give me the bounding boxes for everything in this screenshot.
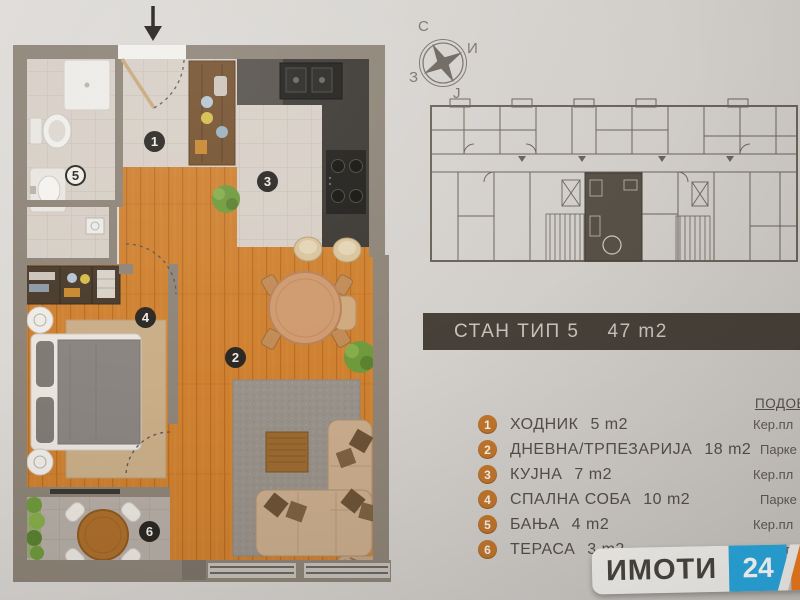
- shower: [64, 60, 110, 110]
- flooring-entry: Парке: [753, 437, 800, 462]
- apartment-title-bar: СТАН ТИП 5 47 m2: [423, 313, 800, 350]
- flooring-entry: Кер.пл: [753, 512, 800, 537]
- corridor-markers: [518, 156, 734, 162]
- washing-machine: [86, 218, 104, 234]
- nightstand-top: [27, 307, 53, 333]
- apartment-floor-plan: [0, 0, 420, 600]
- entrance-gap: [118, 45, 186, 59]
- legend-row-3: 3 КУЈНА 7 m2: [478, 462, 751, 487]
- dining-set: [260, 272, 356, 350]
- flooring-entry: Кер.пл: [753, 412, 800, 437]
- legend-room-name: БАЊА: [510, 516, 560, 534]
- plant-living: [344, 341, 376, 373]
- legend-badge-6: 6: [478, 540, 497, 559]
- bedroom-wardrobe: [23, 266, 120, 304]
- plant-hall: [212, 185, 240, 213]
- windows: [182, 560, 390, 580]
- legend-badge-4: 4: [478, 490, 497, 509]
- legend-room-area: 10 m2: [643, 491, 690, 509]
- plan-badge-5: 5: [65, 165, 86, 186]
- building-floor-plan: [428, 96, 800, 271]
- legend-room-name: СПАЛНА СОБА: [510, 491, 631, 509]
- plan-badge-2: 2: [225, 347, 246, 368]
- legend-room-area: 18 m2: [704, 441, 751, 459]
- terrace-slider: [50, 489, 120, 494]
- apartment-type-label: СТАН ТИП 5: [454, 321, 580, 343]
- flooring-entry: Кер.пл: [753, 462, 800, 487]
- compass-east-label: И: [467, 40, 478, 57]
- room-legend: 1 ХОДНИК 5 m2 2 ДНЕВНА/ТРПЕЗАРИЈА 18 m2 …: [478, 412, 751, 562]
- apartment-area-label: 47 m2: [608, 321, 668, 343]
- legend-room-name: ДНЕВНА/ТРПЕЗАРИЈА: [510, 441, 692, 459]
- nightstand-bottom: [27, 449, 53, 475]
- coffee-table: [266, 432, 308, 472]
- logo-name-text: ИМОТИ: [606, 552, 718, 587]
- floorplan-brochure-page: { "title_bar": { "label": "СТАН ТИП 5", …: [0, 0, 800, 600]
- legend-row-2: 2 ДНЕВНА/ТРПЕЗАРИЈА 18 m2: [478, 437, 751, 462]
- legend-room-area: 5 m2: [590, 416, 628, 434]
- toilet: [30, 114, 71, 148]
- logo-name-section: ИМОТИ: [592, 546, 730, 595]
- plan-badge-1: 1: [144, 131, 165, 152]
- cooktop: [326, 150, 366, 214]
- plan-badge-3: 3: [257, 171, 278, 192]
- flooring-column: Кер.пл Парке Кер.пл Парке Кер.пл Кер.пл: [753, 412, 800, 562]
- kitchen-sink: [280, 63, 342, 99]
- legend-room-area: 4 m2: [572, 516, 610, 534]
- plan-badge-4: 4: [135, 307, 156, 328]
- logo-24-text: 24: [742, 552, 774, 585]
- flooring-header: ПОДОВ: [755, 396, 800, 411]
- legend-row-4: 4 СПАЛНА СОБА 10 m2: [478, 487, 751, 512]
- flooring-entry: Парке: [753, 487, 800, 512]
- legend-room-name: ХОДНИК: [510, 416, 578, 434]
- legend-room-area: 7 m2: [574, 466, 612, 484]
- legend-badge-5: 5: [478, 515, 497, 534]
- compass-north-label: С: [418, 18, 429, 35]
- highlighted-unit: [585, 173, 642, 261]
- plan-badge-6: 6: [139, 521, 160, 542]
- legend-badge-3: 3: [478, 465, 497, 484]
- utility-floor: [27, 207, 117, 264]
- bed: [31, 334, 141, 450]
- legend-badge-1: 1: [478, 415, 497, 434]
- hall-closet: [189, 61, 235, 165]
- imoti-247-logo: ИМОТИ 24 7: [592, 543, 800, 594]
- legend-badge-2: 2: [478, 440, 497, 459]
- legend-row-1: 1 ХОДНИК 5 m2: [478, 412, 751, 437]
- legend-room-name: КУЈНА: [510, 466, 562, 484]
- legend-room-name: ТЕРАСА: [510, 541, 575, 559]
- legend-row-5: 5 БАЊА 4 m2: [478, 512, 751, 537]
- compass-west-label: З: [409, 69, 418, 86]
